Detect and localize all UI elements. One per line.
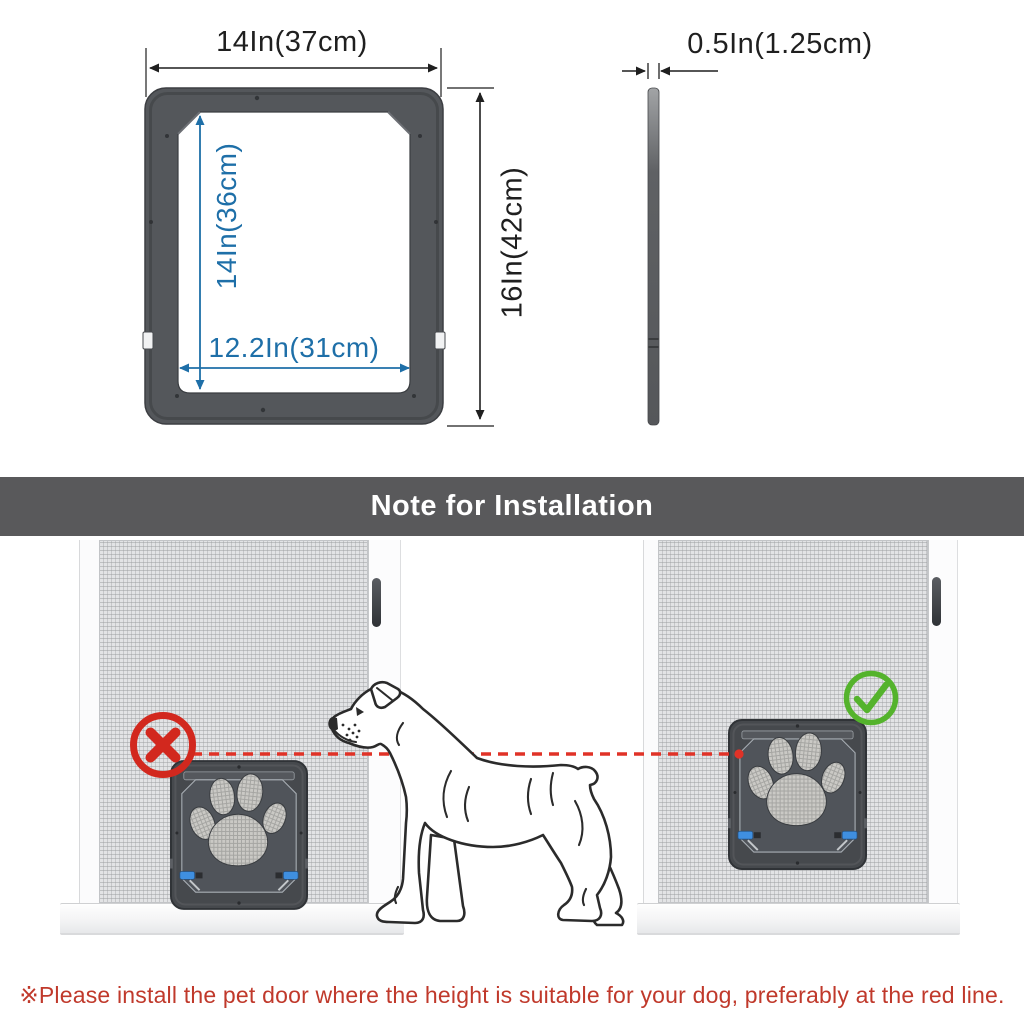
pet-door-frame-front-view	[143, 88, 445, 424]
x-icon	[127, 709, 199, 781]
section-banner: Note for Installation	[0, 477, 1024, 536]
door-handle	[372, 578, 381, 627]
installation-footnote: ※Please install the pet door where the h…	[0, 982, 1024, 1009]
pet-door-frame-side-view	[648, 88, 659, 425]
side-thickness-label: 0.5In(1.25cm)	[655, 30, 905, 59]
door-sill	[637, 903, 960, 935]
door-handle	[932, 577, 941, 626]
inner-height-label: 14In(36cm)	[213, 131, 241, 301]
door-jamb	[79, 540, 101, 903]
banner-title: Note for Installation	[371, 490, 654, 523]
pet-door-correct-position	[728, 719, 867, 870]
infographic-canvas: 14In(37cm) 0.5In(1.25cm) 16In(42cm) 14In…	[0, 0, 1024, 1024]
outer-height-label: 16In(42cm)	[499, 153, 528, 333]
pet-door-low-position	[170, 760, 308, 910]
inner-width-label: 12.2In(31cm)	[184, 334, 404, 362]
front-width-label: 14In(37cm)	[192, 28, 392, 57]
dog-illustration	[323, 673, 665, 935]
check-icon	[842, 669, 900, 727]
